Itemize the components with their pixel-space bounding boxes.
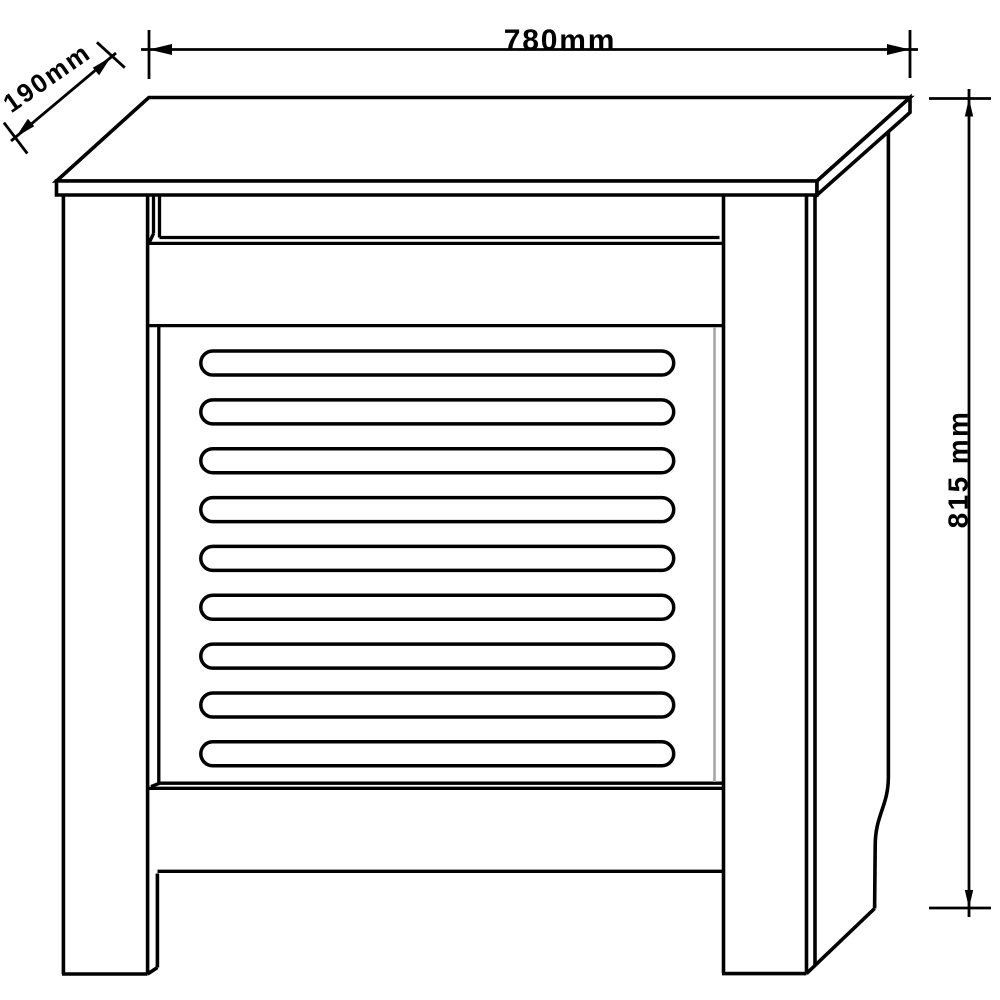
svg-text:780mm: 780mm xyxy=(504,24,616,57)
svg-text:815 mm: 815 mm xyxy=(943,410,974,529)
